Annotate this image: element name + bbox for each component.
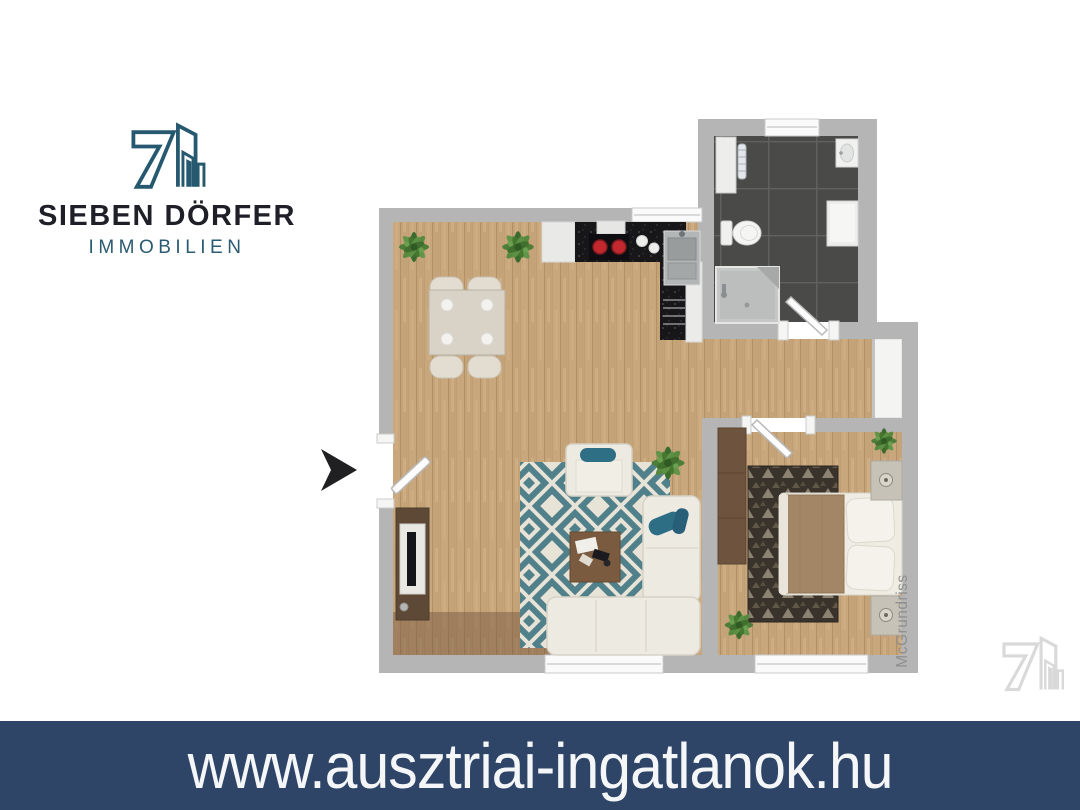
brand-name: SIEBEN DÖRFER xyxy=(38,200,296,233)
stove-burner xyxy=(593,240,607,254)
plant-icon xyxy=(502,231,534,263)
wall-bathroom-right xyxy=(858,119,877,322)
dining-chair xyxy=(468,356,501,378)
plant-icon xyxy=(399,232,429,262)
website-banner: www.ausztriai-ingatlanok.hu xyxy=(0,721,1080,810)
plant-icon xyxy=(871,428,897,454)
plate xyxy=(649,243,659,253)
brand-logo-block: SIEBEN DÖRFER IMMOBILIEN xyxy=(38,104,296,259)
towel-radiator xyxy=(738,144,746,179)
plant-icon xyxy=(652,447,685,480)
entrance-arrow-icon xyxy=(321,449,357,491)
plate xyxy=(637,236,648,247)
bedroom-window xyxy=(755,655,868,673)
watermark-logo-icon xyxy=(997,622,1067,694)
sieben-doerfer-logo-icon xyxy=(125,104,209,194)
plate xyxy=(441,299,453,311)
teal-pillow xyxy=(580,448,616,462)
plate xyxy=(481,299,493,311)
armchair xyxy=(566,444,632,496)
wall-bedroom-left xyxy=(702,418,718,655)
tv-sideboard xyxy=(396,508,429,620)
kitchen-sink xyxy=(664,231,700,285)
double-bed xyxy=(779,493,902,595)
brand-subtitle: IMMOBILIEN xyxy=(38,237,296,259)
stove-burner xyxy=(612,240,626,254)
coffee-table xyxy=(570,532,620,582)
plant-icon xyxy=(725,611,754,640)
mcgrundriss-watermark: McGrundriss xyxy=(894,541,918,701)
tv-icon xyxy=(407,532,416,586)
bathroom-cabinet xyxy=(716,137,736,193)
wall-bedroom-top-right xyxy=(807,418,918,432)
shower xyxy=(716,267,779,323)
toilet-icon xyxy=(721,221,761,245)
hallway-floor xyxy=(702,339,874,418)
shelf-niche xyxy=(827,201,858,246)
real-estate-floorplan-page: SIEBEN DÖRFER IMMOBILIEN xyxy=(0,0,1080,810)
floorplan-rendering xyxy=(300,98,940,690)
wall-left-lower xyxy=(379,500,393,673)
living-room-window xyxy=(545,655,663,673)
dining-chair xyxy=(430,356,463,378)
washbasin xyxy=(836,139,858,167)
bathroom-window xyxy=(765,119,819,136)
pillow xyxy=(846,497,895,543)
wardrobe xyxy=(718,428,746,564)
plate xyxy=(441,333,453,345)
nightstand-top xyxy=(871,461,902,500)
kitchen-cabinet-white xyxy=(542,222,575,262)
pillow xyxy=(846,545,895,591)
kitchen-window xyxy=(632,208,702,222)
wall-bathroom-bottom-left xyxy=(698,322,787,339)
website-url: www.ausztriai-ingatlanok.hu xyxy=(188,729,893,803)
wall-left-upper xyxy=(379,208,393,442)
hall-niche xyxy=(874,339,902,418)
range-hood-icon xyxy=(597,221,625,234)
niche-divider xyxy=(872,339,875,418)
dining-table xyxy=(429,290,505,355)
duvet xyxy=(787,495,844,593)
plate xyxy=(481,333,493,345)
